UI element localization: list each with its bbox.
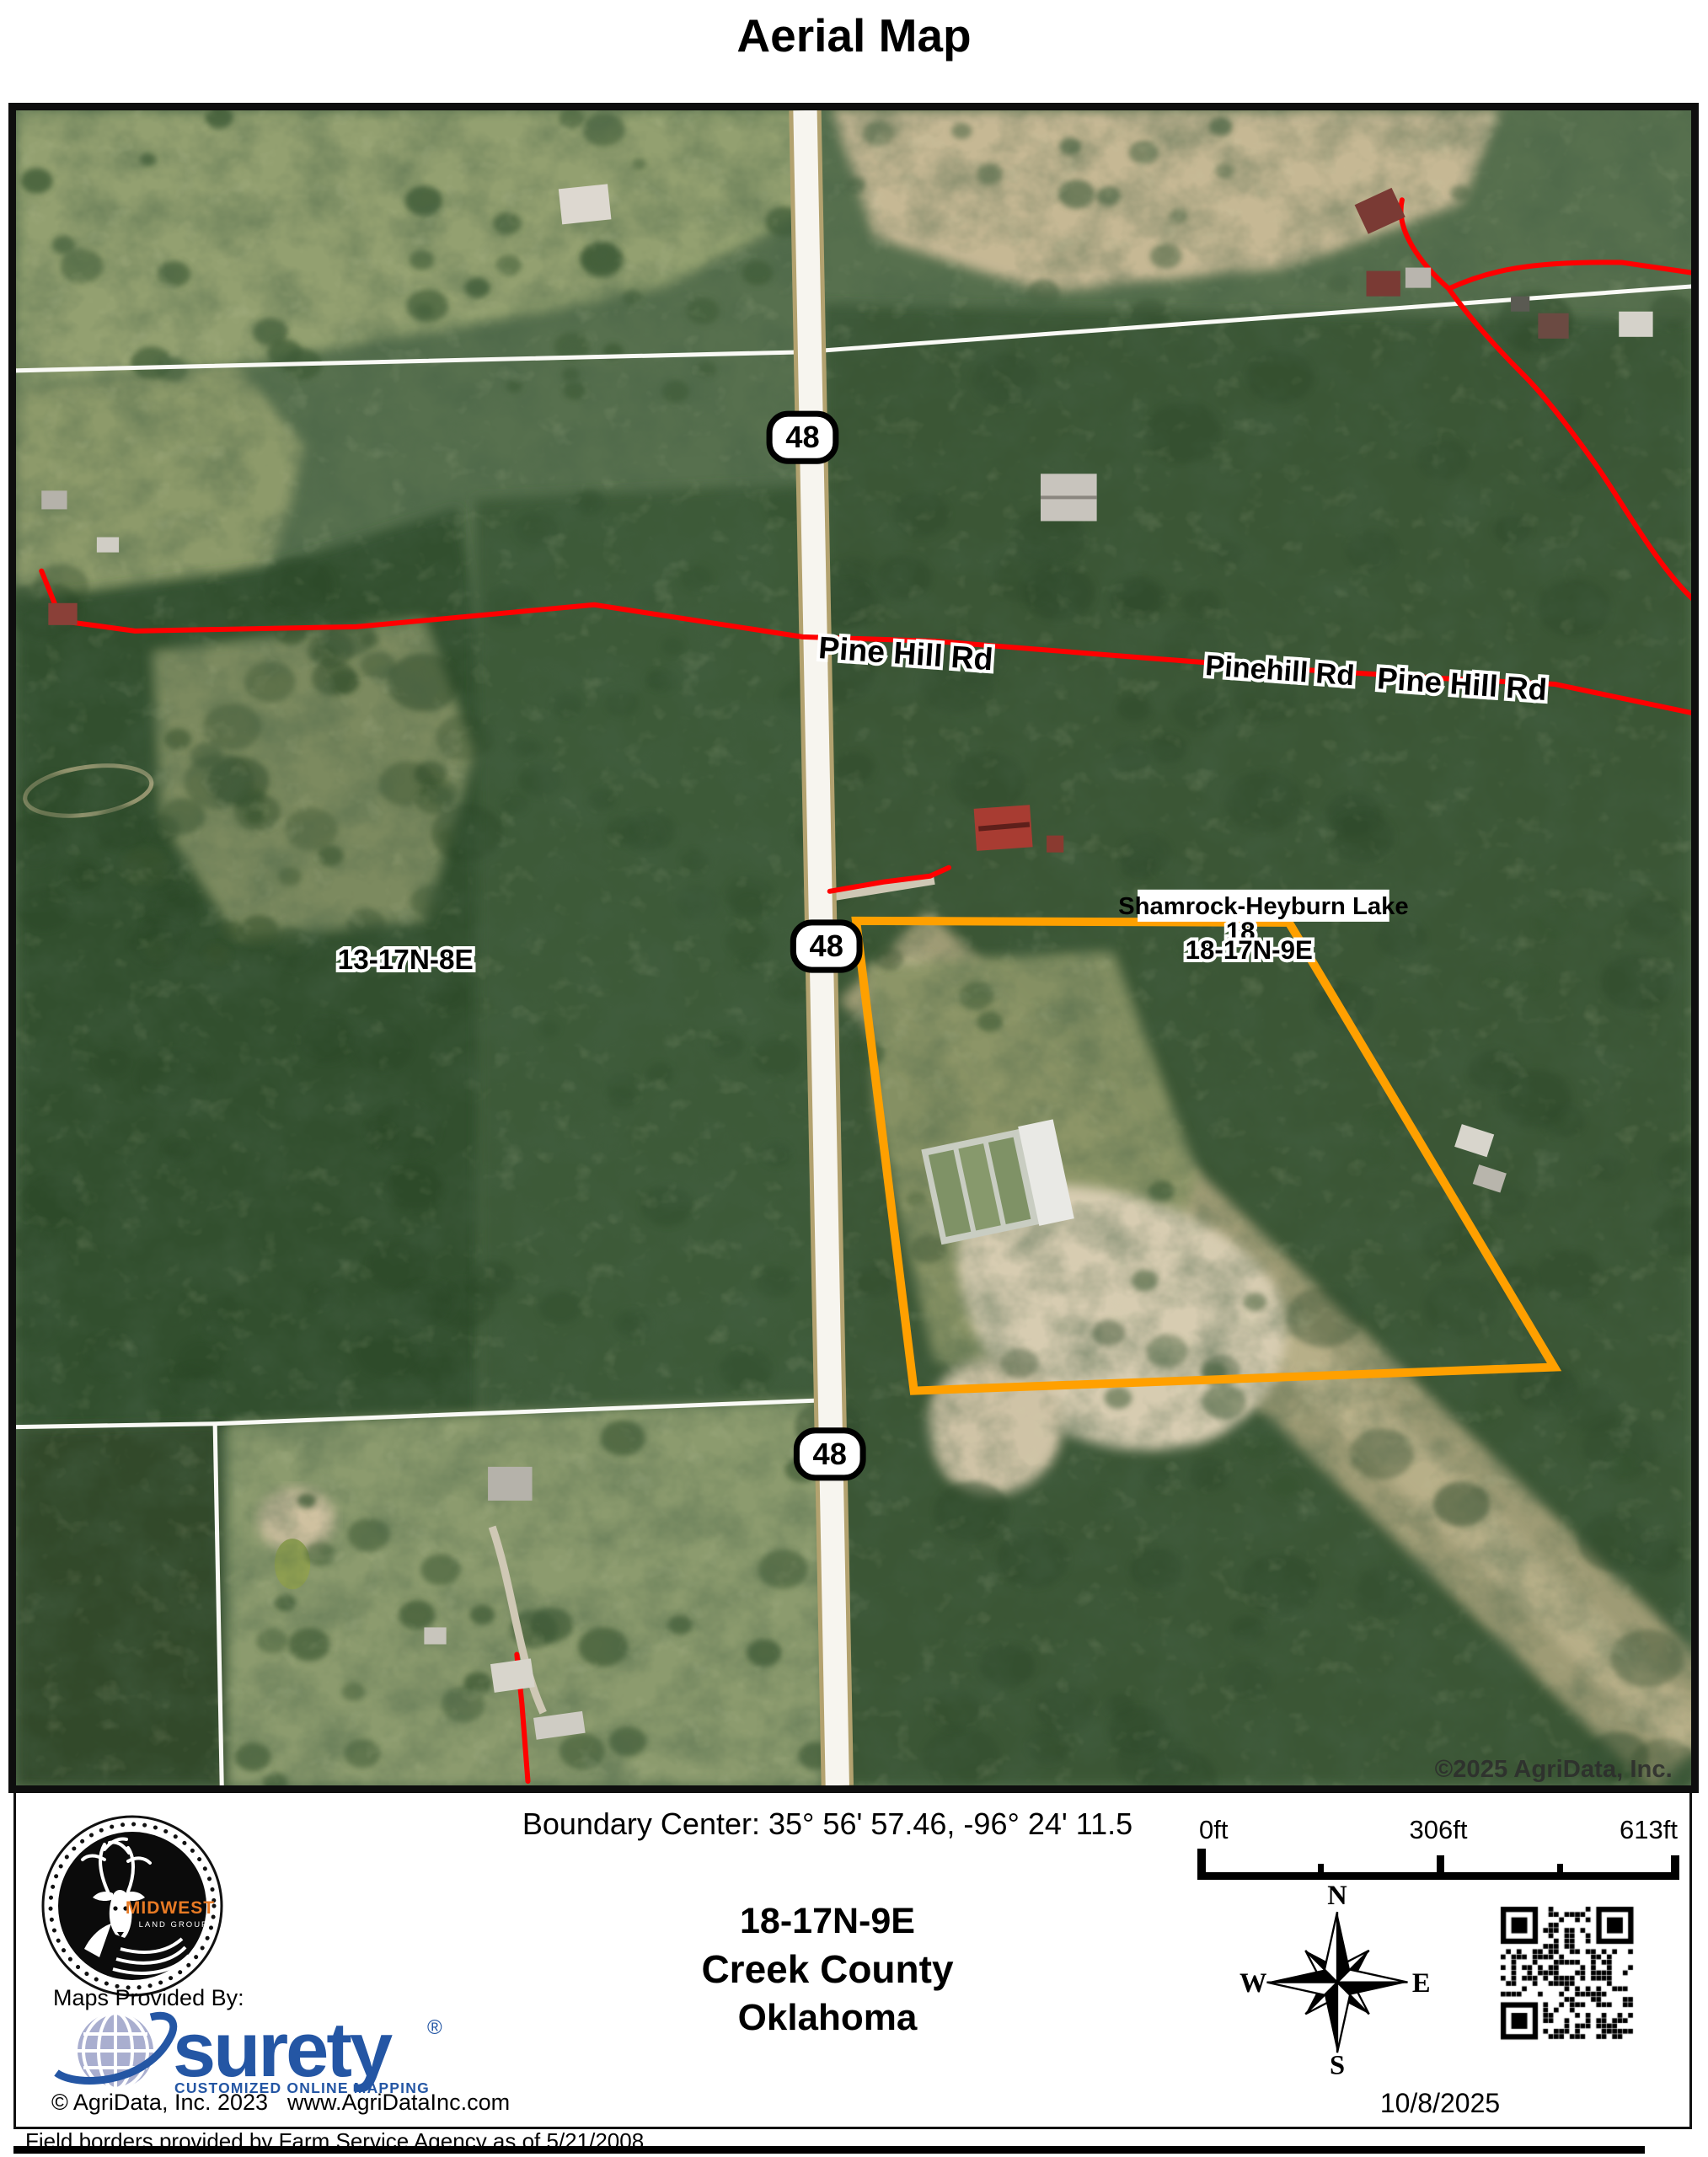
- bottom-rule: [13, 2146, 1645, 2154]
- shed: [424, 1627, 446, 1644]
- compass-north-label: N: [1327, 1881, 1347, 1911]
- building: [559, 184, 612, 224]
- agridata-website: www.AgriDataInc.com: [287, 2090, 510, 2116]
- registered-mark: ®: [427, 2016, 442, 2039]
- building: [1619, 312, 1652, 337]
- compass-rose: N S W E: [1240, 1881, 1435, 2076]
- scale-bar-labels: 0ft 306ft 613ft: [1199, 1815, 1678, 1845]
- compass-east-label: E: [1412, 1968, 1431, 1999]
- section-label-west: 13-17N-8E: [338, 945, 474, 976]
- barn: [1538, 313, 1568, 339]
- map-date: 10/8/2025: [1331, 2088, 1550, 2119]
- map-copyright: ©2025 AgriData, Inc.: [1435, 1756, 1673, 1783]
- compass-south-label: S: [1330, 2051, 1345, 2076]
- agridata-copyright: © AgriData, Inc. 2023: [51, 2090, 268, 2116]
- shed: [1511, 297, 1529, 312]
- shed: [41, 490, 67, 509]
- shield-number: 48: [810, 929, 843, 963]
- logo-subtitle: LAND GROUP: [139, 1920, 209, 1930]
- shield-number: 48: [813, 1437, 847, 1471]
- logo-title: MIDWEST: [126, 1898, 215, 1918]
- aerial-map-canvas: 48 48 48 Pine Hill Rd Pinehill Rd Pine H…: [16, 110, 1691, 1785]
- building: [490, 1658, 535, 1692]
- lake-label: Shamrock-Heyburn Lake: [1118, 893, 1409, 920]
- building-red-roof: [1367, 271, 1400, 297]
- aerial-map-report-page: Aerial Map: [0, 0, 1708, 2157]
- barn: [488, 1467, 532, 1501]
- maps-provided-label: Maps Provided By:: [53, 1985, 244, 2011]
- midwest-land-group-logo: MIDWEST LAND GROUP: [40, 1814, 224, 1998]
- globe-icon: [56, 2013, 174, 2089]
- shed: [1047, 836, 1063, 853]
- agridata-credits: © AgriData, Inc. 2023 www.AgriDataInc.co…: [51, 2090, 557, 2115]
- section-label-current: 18-17N-9E: [1186, 935, 1313, 965]
- highway-48-shield: 48: [769, 414, 836, 461]
- shed: [97, 538, 119, 553]
- surety-logo: surety ® CUSTOMIZED ONLINE MAPPING: [46, 2010, 501, 2096]
- highway-48-shield: 48: [796, 1431, 863, 1478]
- aerial-map-image: 48 48 48 Pine Hill Rd Pinehill Rd Pine H…: [8, 103, 1699, 1793]
- scale-mid: 306ft: [1199, 1815, 1678, 1845]
- scale-bar: [1196, 1849, 1681, 1884]
- building-red-roof: [48, 603, 77, 625]
- compass-west-label: W: [1240, 1968, 1266, 1999]
- page-title: Aerial Map: [0, 8, 1708, 62]
- building: [1405, 268, 1431, 288]
- shield-number: 48: [785, 420, 819, 454]
- scale-end: 613ft: [1620, 1815, 1678, 1845]
- footer-panel: Boundary Center: 35° 56' 57.46, -96° 24'…: [13, 1793, 1692, 2129]
- highway-48-shield: 48: [793, 923, 859, 970]
- qr-code: [1495, 1901, 1640, 2046]
